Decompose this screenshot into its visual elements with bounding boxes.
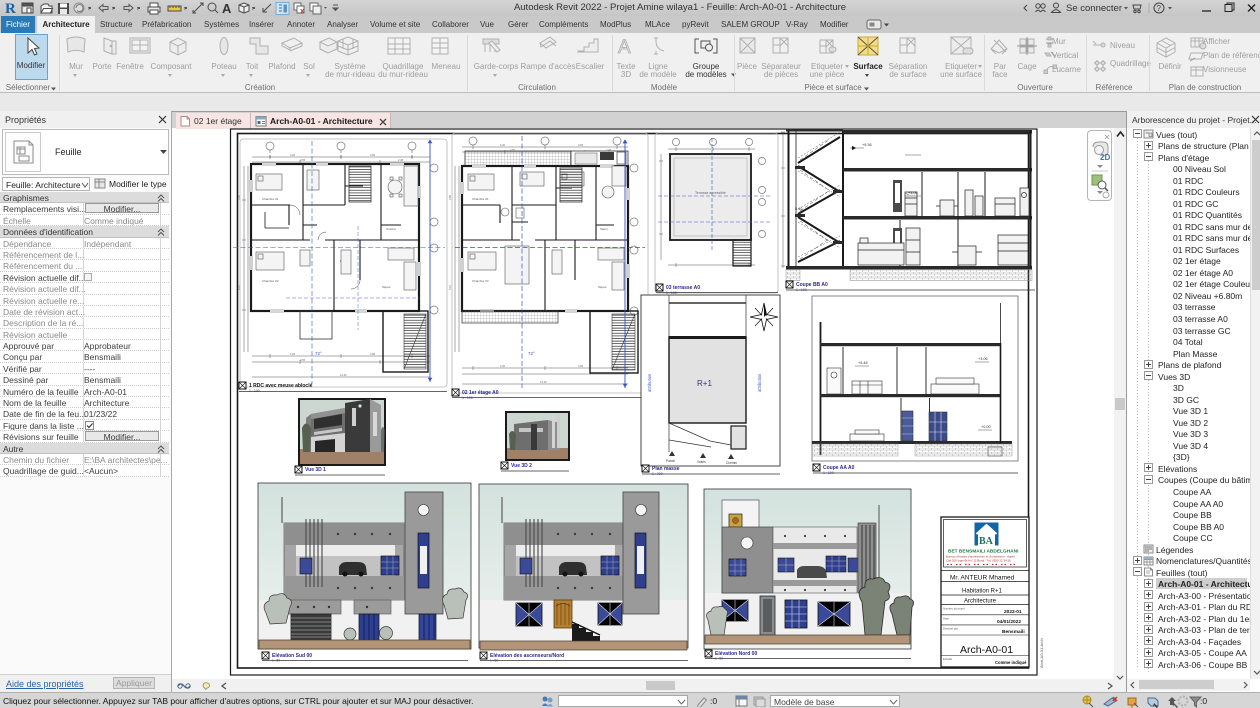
svg-text:Arch-A0-01: Arch-A0-01 — [960, 644, 1013, 656]
svg-text:+0.00: +0.00 — [981, 425, 991, 429]
svg-text:1 : 100: 1 : 100 — [462, 396, 473, 400]
svg-text:attribution: attribution — [757, 373, 762, 392]
svg-text:Arch-A0-01-Arch: Arch-A0-01-Arch — [1039, 638, 1044, 668]
svg-text:3.55: 3.55 — [300, 158, 306, 162]
svg-text:3.85: 3.85 — [448, 194, 452, 200]
svg-text:Voisin: Voisin — [697, 460, 706, 464]
svg-text:R+1: R+1 — [697, 379, 712, 388]
svg-text:3.90: 3.90 — [578, 143, 584, 147]
svg-text:3.55: 3.55 — [510, 148, 516, 152]
svg-text:Chambre 01: Chambre 01 — [262, 197, 279, 201]
svg-text:Séjour: Séjour — [598, 285, 607, 289]
svg-text:Architecture: Architecture — [964, 599, 997, 605]
svg-text:3.90: 3.90 — [578, 364, 584, 368]
svg-text:Dessiné par: Dessiné par — [943, 627, 958, 631]
svg-text:+6.46: +6.46 — [858, 361, 868, 365]
svg-text:1 : 100: 1 : 100 — [249, 389, 260, 393]
svg-text:+3.06: +3.06 — [908, 191, 918, 195]
svg-text:2022-01: 2022-01 — [1004, 609, 1022, 615]
svg-text:12.40: 12.40 — [540, 380, 547, 384]
svg-text:72°: 72° — [528, 351, 535, 356]
svg-text:Se connecter: Se connecter — [1066, 3, 1122, 14]
svg-text:12.40: 12.40 — [340, 373, 347, 377]
svg-text:?: ? — [1157, 4, 1162, 13]
svg-text:4.20: 4.20 — [290, 352, 296, 356]
svg-text:2.48: 2.48 — [398, 158, 404, 162]
svg-text:Echelle: Echelle — [943, 657, 953, 661]
svg-text:Vue 3D 2: Vue 3D 2 — [511, 463, 532, 469]
svg-text:Salon: Salon — [600, 227, 608, 231]
svg-text:Habitation R+1: Habitation R+1 — [962, 589, 1003, 595]
svg-text:Date: Date — [943, 617, 949, 621]
svg-text:Séjour: Séjour — [382, 285, 391, 289]
svg-text:Chambre 02: Chambre 02 — [262, 279, 279, 283]
svg-text:Comme indiqué: Comme indiqué — [995, 660, 1027, 665]
svg-text:4.20: 4.20 — [500, 143, 506, 147]
svg-text:Vue 3D 1: Vue 3D 1 — [305, 467, 326, 473]
svg-text:Cuisine: Cuisine — [386, 227, 396, 231]
svg-text:4.20: 4.20 — [290, 153, 296, 157]
svg-text:3.90: 3.90 — [370, 153, 376, 157]
svg-text:4.10: 4.10 — [448, 284, 452, 290]
svg-text:4.10: 4.10 — [237, 284, 241, 290]
svg-text:Chambre 03: Chambre 03 — [472, 279, 489, 283]
svg-text:Chambre 01: Chambre 01 — [472, 197, 489, 201]
svg-text:3.90: 3.90 — [370, 352, 376, 356]
svg-text:+9.36: +9.36 — [862, 143, 872, 147]
svg-text:Elévation des ascenseurs/Nord: Elévation des ascenseurs/Nord — [490, 653, 564, 659]
svg-text:Parcel: Parcel — [666, 459, 675, 463]
svg-text:Cité 200 logts Bt A n°12 Bordj: Cité 200 logts Bt A n°12 Bordj - Tél: 05… — [946, 559, 1011, 563]
svg-text:Numéro du projet: Numéro du projet — [943, 607, 965, 611]
svg-text:1 : 100: 1 : 100 — [666, 291, 677, 295]
svg-text:Chemin: Chemin — [726, 461, 737, 465]
svg-text:x: x — [300, 7, 305, 16]
svg-text:R: R — [5, 1, 16, 16]
svg-text:A: A — [618, 37, 631, 58]
svg-text:Terrasse accessible: Terrasse accessible — [695, 191, 726, 195]
svg-text:Bensmaili: Bensmaili — [1002, 629, 1025, 635]
svg-text:5.40: 5.40 — [795, 207, 802, 211]
svg-text:+3.06: +3.06 — [978, 357, 988, 361]
svg-text:04/01/2022: 04/01/2022 — [997, 619, 1021, 625]
svg-text:3.85: 3.85 — [237, 194, 241, 200]
svg-text:2D: 2D — [1100, 153, 1110, 162]
svg-text:BA: BA — [979, 536, 994, 547]
svg-text:72°: 72° — [315, 351, 322, 356]
svg-text:4.20: 4.20 — [500, 364, 506, 368]
svg-text:attribution: attribution — [647, 373, 652, 392]
svg-text:2.48: 2.48 — [606, 148, 612, 152]
svg-text:A: A — [222, 1, 232, 16]
svg-text:3.55: 3.55 — [300, 358, 306, 362]
svg-text:Mr. ANTEUR Mhamed: Mr. ANTEUR Mhamed — [950, 575, 1015, 582]
